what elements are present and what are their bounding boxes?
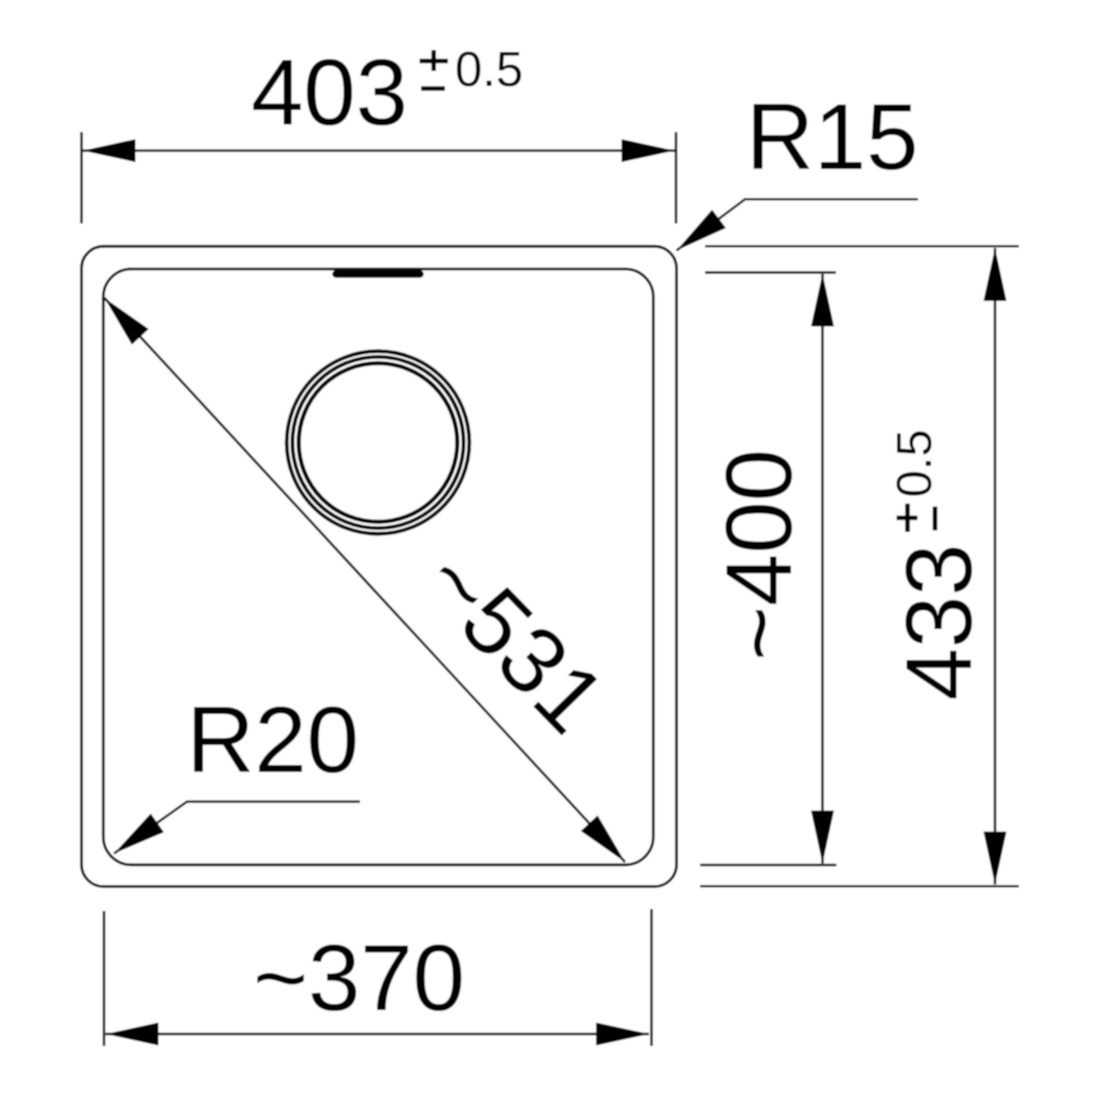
svg-text:~400: ~400 [706,449,811,661]
svg-text:433: 433 [886,544,991,701]
svg-text:0.5: 0.5 [888,429,942,497]
svg-text:~370: ~370 [253,925,465,1030]
svg-text:R15: R15 [746,84,918,189]
svg-text:0.5: 0.5 [455,43,523,97]
svg-text:R20: R20 [187,687,359,792]
svg-text:403: 403 [251,40,408,145]
